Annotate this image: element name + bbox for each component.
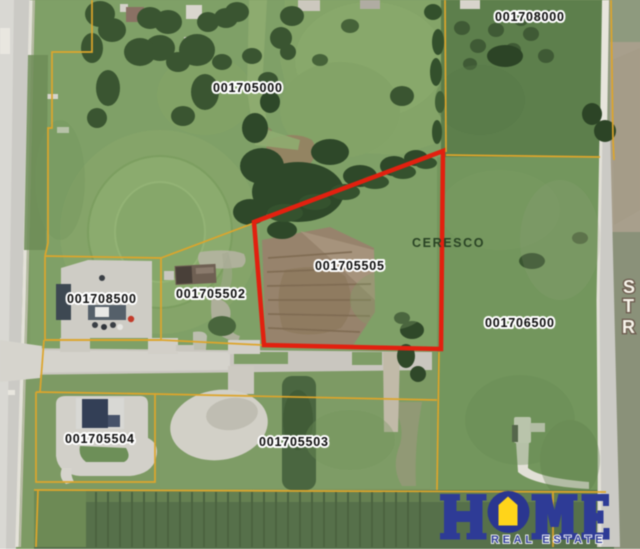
svg-text:001705000: 001705000 bbox=[213, 81, 283, 95]
svg-text:CERESCO: CERESCO bbox=[412, 236, 485, 250]
svg-text:001706500: 001706500 bbox=[485, 316, 555, 330]
svg-text:001708000: 001708000 bbox=[495, 10, 565, 24]
svg-text:001705505: 001705505 bbox=[315, 259, 385, 273]
svg-text:001705504: 001705504 bbox=[65, 432, 135, 446]
svg-text:001705503: 001705503 bbox=[259, 435, 329, 449]
svg-text:T: T bbox=[623, 296, 634, 316]
svg-text:001705502: 001705502 bbox=[176, 287, 246, 301]
svg-text:R: R bbox=[622, 317, 635, 337]
svg-text:001708500: 001708500 bbox=[67, 292, 137, 306]
svg-text:S: S bbox=[623, 277, 635, 297]
svg-text:REAL ESTATE: REAL ESTATE bbox=[491, 534, 606, 546]
